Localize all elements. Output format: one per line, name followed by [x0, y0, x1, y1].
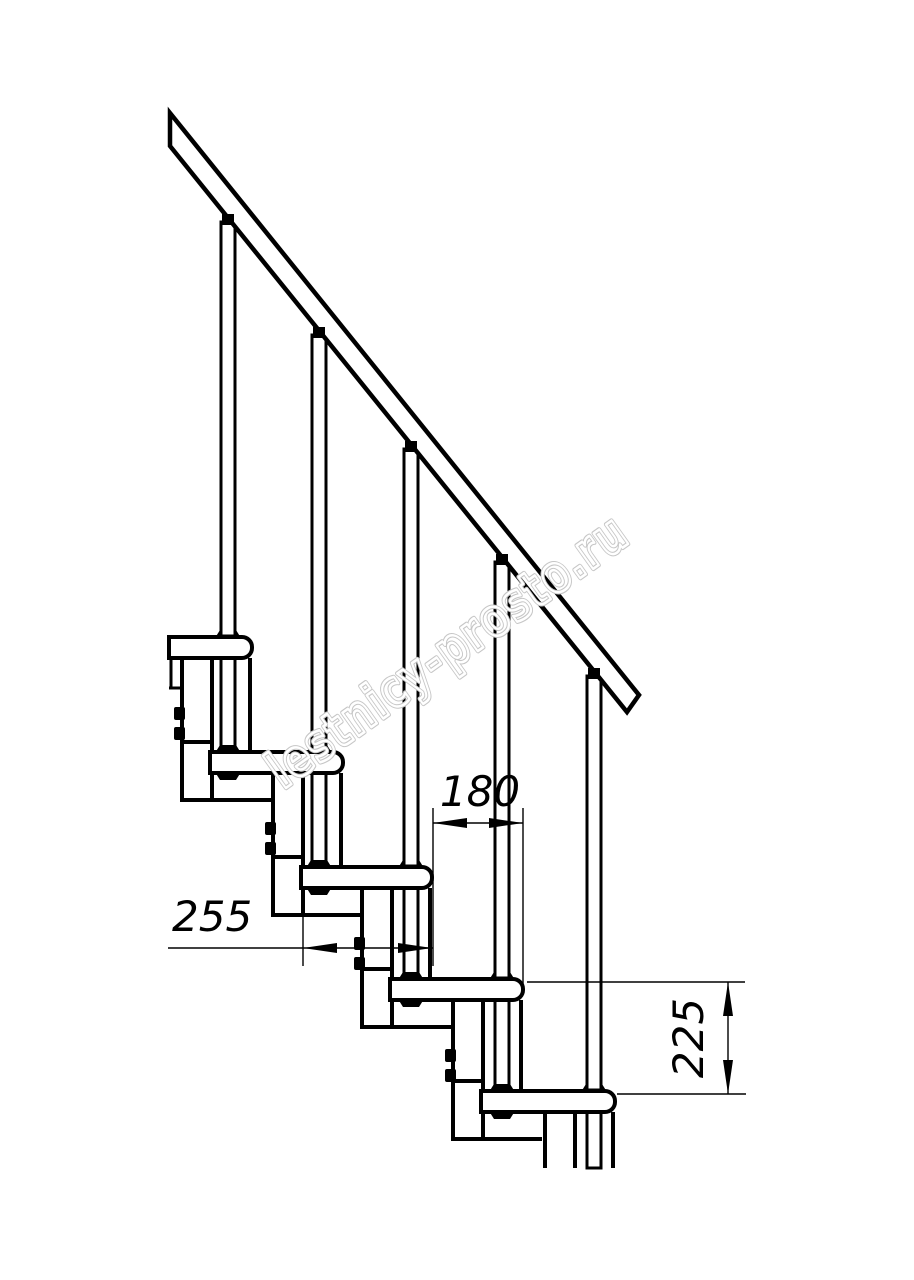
- dimension-label-tread-depth: 255: [172, 892, 252, 941]
- dimension-label-step-rise: 225: [664, 998, 713, 1078]
- post-segment: [404, 886, 418, 978]
- baluster-cap: [222, 214, 234, 225]
- post-foot: [306, 860, 332, 868]
- clamp-bolt: [445, 1049, 456, 1062]
- under-tread-nut: [398, 999, 424, 1007]
- post-segment: [312, 771, 326, 866]
- under-tread-nut: [306, 887, 332, 895]
- dimension-step-rise: 225: [527, 982, 746, 1094]
- post-foot: [398, 972, 424, 980]
- bracket-body: [362, 886, 392, 1027]
- baluster-5: [587, 676, 601, 1090]
- tread-5: [481, 1091, 615, 1112]
- arrowhead-left: [433, 818, 467, 828]
- post-segment: [587, 1112, 601, 1168]
- under-tread-nut: [489, 1111, 515, 1119]
- staircase-drawing: 180 255 225 lestnicy-prosto.ru lestnicy-…: [0, 0, 914, 1280]
- support-bracket-5-cut: [545, 1112, 575, 1168]
- post-foot: [215, 745, 241, 753]
- post-segment: [221, 656, 235, 751]
- clamp-bolt: [354, 957, 365, 970]
- bracket-body: [182, 656, 212, 800]
- baluster-1: [221, 222, 235, 636]
- post-foot: [489, 1084, 515, 1092]
- bracket-body: [453, 998, 483, 1139]
- arrowhead-left: [303, 943, 337, 953]
- clamp-bolt: [174, 707, 185, 720]
- clamp-bolt: [265, 822, 276, 835]
- arrowhead-up: [723, 982, 733, 1016]
- arrowhead-down: [723, 1060, 733, 1094]
- clamp-bolt: [174, 727, 185, 740]
- clamp-bolt: [265, 842, 276, 855]
- baluster-2: [312, 335, 326, 751]
- dimension-label-step-run: 180: [440, 767, 520, 816]
- under-tread-nut: [215, 772, 241, 780]
- baluster-cap: [496, 554, 508, 565]
- technical-drawing-canvas: 180 255 225 lestnicy-prosto.ru lestnicy-…: [0, 0, 914, 1280]
- clamp-bolt: [445, 1069, 456, 1082]
- baluster-cap: [588, 668, 600, 679]
- tread-3: [301, 867, 432, 888]
- baluster-cap: [405, 441, 417, 452]
- post-segment: [495, 998, 509, 1090]
- tread-1: [169, 637, 252, 658]
- baluster-cap: [313, 327, 325, 338]
- tread-4: [390, 979, 523, 1000]
